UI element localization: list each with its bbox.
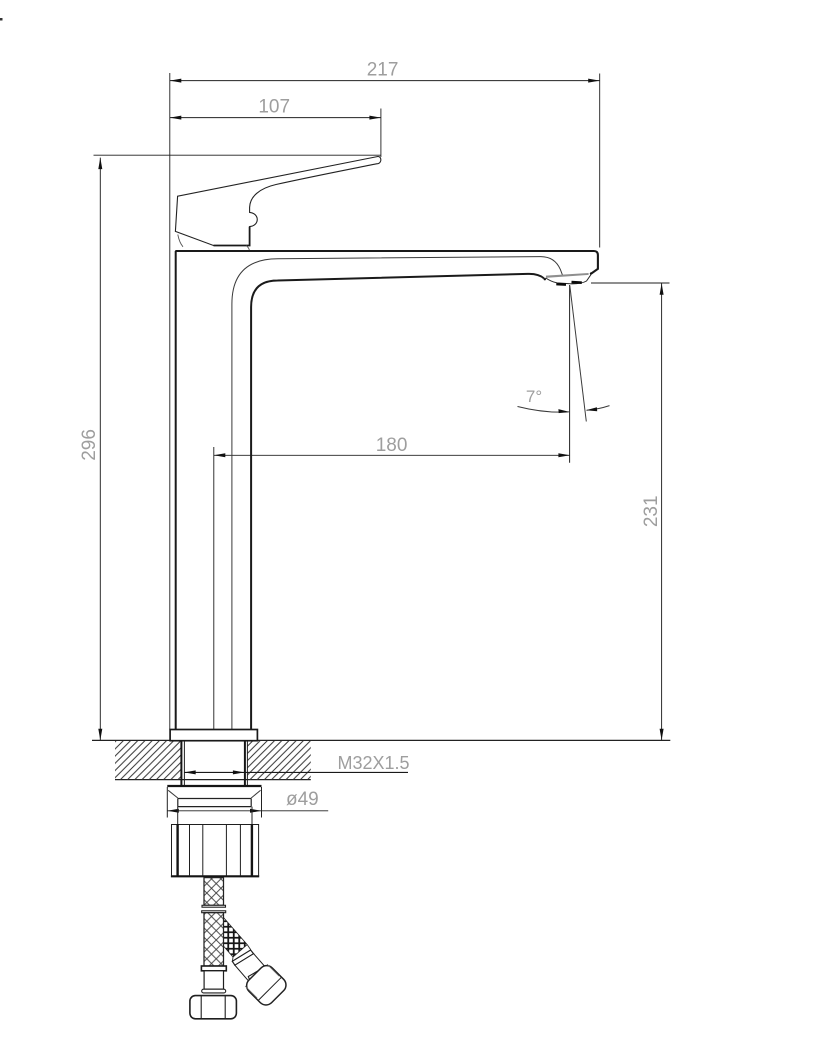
svg-text:107: 107	[258, 96, 290, 117]
svg-text:ø49: ø49	[286, 789, 319, 810]
svg-text:180: 180	[376, 435, 408, 456]
svg-text:7°: 7°	[526, 387, 542, 406]
svg-text:231: 231	[641, 495, 662, 527]
svg-text:296: 296	[79, 429, 100, 461]
svg-text:217: 217	[367, 60, 399, 81]
svg-text:M32X1.5: M32X1.5	[338, 753, 410, 773]
